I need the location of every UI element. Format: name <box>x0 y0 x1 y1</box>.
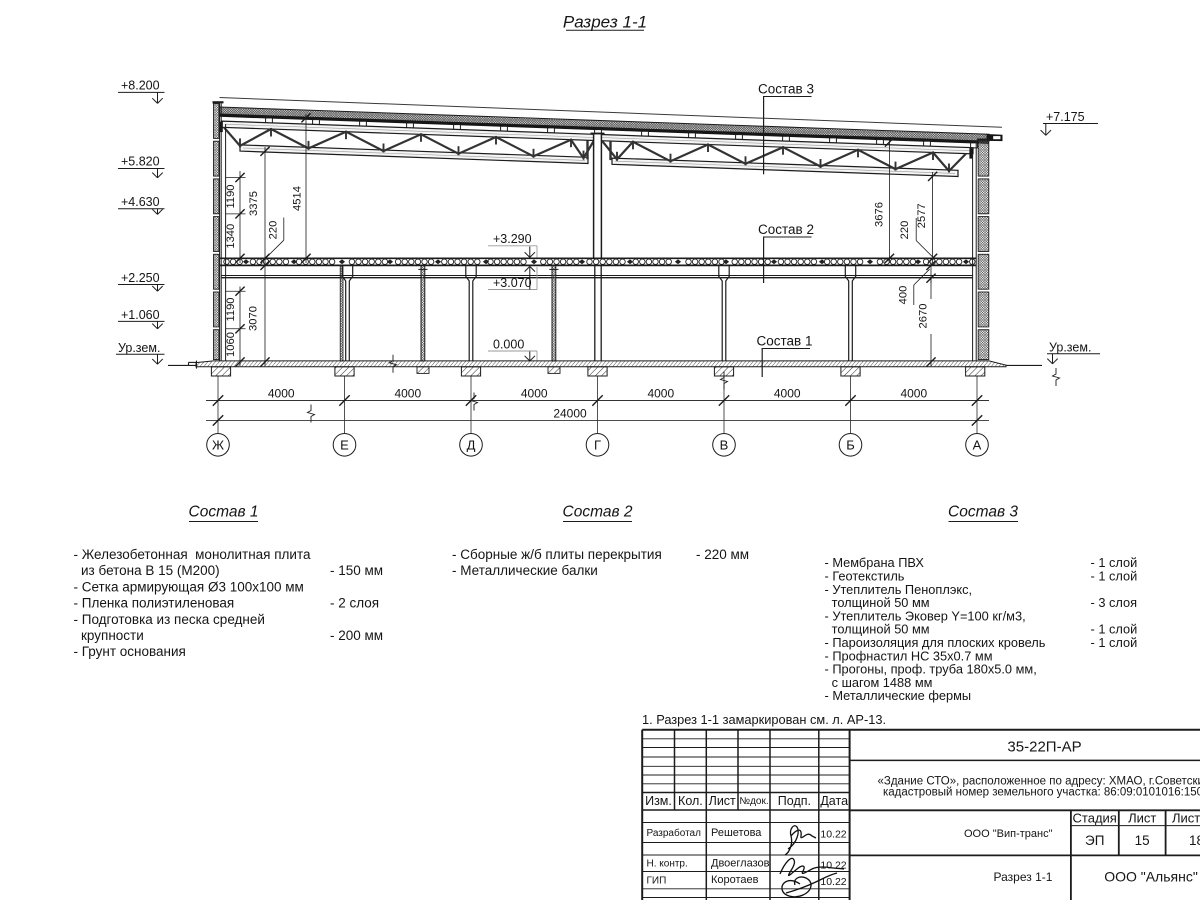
svg-text:- 220 мм: - 220 мм <box>696 547 749 562</box>
svg-text:ООО "Альянс": ООО "Альянс" <box>1104 869 1198 885</box>
svg-text:Коротаев: Коротаев <box>711 874 759 886</box>
svg-text:4000: 4000 <box>268 386 295 400</box>
svg-text:2577: 2577 <box>916 203 928 228</box>
svg-text:Состав 3: Состав 3 <box>948 504 1018 521</box>
svg-text:1. Разрез 1-1 замаркирован см.: 1. Разрез 1-1 замаркирован см. л. АР-13. <box>642 712 886 727</box>
svg-text:Состав 2: Состав 2 <box>758 222 814 237</box>
svg-text:4000: 4000 <box>521 386 548 400</box>
svg-text:4000: 4000 <box>900 386 927 400</box>
svg-text:- Сборные ж/б плиты перекрытия: - Сборные ж/б плиты перекрытия <box>452 547 662 562</box>
svg-text:Листов: Листов <box>1172 811 1200 826</box>
svg-text:Лист: Лист <box>1128 811 1156 826</box>
svg-text:Н. контр.: Н. контр. <box>647 859 688 870</box>
svg-text:3375: 3375 <box>248 191 260 216</box>
svg-text:4514: 4514 <box>292 186 304 211</box>
svg-text:- 200 мм: - 200 мм <box>330 628 383 643</box>
svg-text:В: В <box>720 437 729 452</box>
svg-text:- Металлические балки: - Металлические балки <box>452 563 598 578</box>
svg-text:Д: Д <box>467 437 476 452</box>
svg-text:- 3 слоя: - 3 слоя <box>1091 595 1138 610</box>
svg-text:- 150 мм: - 150 мм <box>330 563 383 578</box>
svg-text:- 1 слой: - 1 слой <box>1091 569 1138 584</box>
svg-text:«Здание СТО», расположенное по: «Здание СТО», расположенное по адресу: Х… <box>878 775 1200 787</box>
svg-text:- Пленка полиэтиленовая: - Пленка полиэтиленовая <box>74 596 235 611</box>
svg-text:Разрез 1-1: Разрез 1-1 <box>563 12 647 31</box>
svg-text:Дата: Дата <box>820 794 848 808</box>
svg-text:0.000: 0.000 <box>493 338 524 352</box>
svg-text:Ур.зем.: Ур.зем. <box>1049 341 1091 355</box>
svg-text:+3.070: +3.070 <box>493 276 532 290</box>
svg-text:3676: 3676 <box>873 202 885 227</box>
svg-text:№док.: №док. <box>739 796 768 807</box>
svg-text:Двоеглазов: Двоеглазов <box>711 858 770 870</box>
svg-text:220: 220 <box>899 221 911 240</box>
svg-text:крупности: крупности <box>74 628 144 643</box>
svg-text:+8.200: +8.200 <box>121 79 160 93</box>
svg-text:- 1 слой: - 1 слой <box>1091 635 1138 650</box>
svg-text:Ж: Ж <box>212 437 224 452</box>
svg-text:1190: 1190 <box>225 297 237 321</box>
svg-text:2670: 2670 <box>917 304 929 329</box>
svg-text:1190: 1190 <box>225 184 237 208</box>
svg-text:+3.290: +3.290 <box>493 232 532 246</box>
svg-text:4000: 4000 <box>394 386 421 400</box>
svg-text:Состав 1: Состав 1 <box>189 504 259 521</box>
svg-text:- Сетка армирующая Ø3 100х100: - Сетка армирующая Ø3 100х100 мм <box>74 579 304 594</box>
svg-text:из бетона В 15 (М200): из бетона В 15 (М200) <box>74 563 220 578</box>
svg-text:+2.250: +2.250 <box>121 271 160 285</box>
svg-text:кадастровый номер земельного у: кадастровый номер земельного участка: 86… <box>883 787 1200 799</box>
svg-text:А: А <box>973 437 982 452</box>
svg-text:- Грунт основания: - Грунт основания <box>74 644 186 659</box>
svg-text:Состав 2: Состав 2 <box>563 504 633 521</box>
svg-text:Решетова: Решетова <box>711 827 762 839</box>
svg-text:4000: 4000 <box>647 386 674 400</box>
svg-text:35-22П-АР: 35-22П-АР <box>1007 739 1081 756</box>
svg-text:- Железобетонная монолитная п: - Железобетонная монолитная плита <box>74 547 311 562</box>
svg-text:+4.630: +4.630 <box>121 195 160 209</box>
svg-text:400: 400 <box>898 286 910 305</box>
svg-text:Состав 1: Состав 1 <box>757 334 813 349</box>
svg-text:Кол.: Кол. <box>678 794 703 808</box>
svg-text:+5.820: +5.820 <box>121 155 160 169</box>
svg-text:- Подготовка из песка средней: - Подготовка из песка средней <box>74 612 265 627</box>
svg-text:18: 18 <box>1189 833 1200 848</box>
svg-text:Лист: Лист <box>709 794 736 808</box>
svg-text:Разработал: Разработал <box>647 827 702 839</box>
svg-text:Б: Б <box>846 437 855 452</box>
svg-text:ООО "Вип-транс": ООО "Вип-транс" <box>964 828 1053 840</box>
svg-text:Г: Г <box>594 437 601 452</box>
svg-text:1340: 1340 <box>225 224 237 249</box>
svg-text:+7.175: +7.175 <box>1046 110 1085 124</box>
svg-text:15: 15 <box>1135 833 1150 848</box>
svg-text:10.22: 10.22 <box>820 829 846 841</box>
svg-text:24000: 24000 <box>553 406 587 420</box>
svg-text:Е: Е <box>340 437 349 452</box>
svg-text:Состав 3: Состав 3 <box>758 82 814 97</box>
svg-text:- Металлические фермы: - Металлические фермы <box>825 688 972 703</box>
svg-text:1060: 1060 <box>225 332 237 357</box>
svg-text:ЭП: ЭП <box>1085 833 1104 848</box>
svg-text:Подп.: Подп. <box>778 794 811 808</box>
svg-text:ГИП: ГИП <box>647 876 667 887</box>
svg-text:3070: 3070 <box>248 306 260 331</box>
svg-text:220: 220 <box>268 221 280 240</box>
svg-text:+1.060: +1.060 <box>121 308 160 322</box>
svg-text:Изм.: Изм. <box>645 794 672 808</box>
svg-text:Стадия: Стадия <box>1073 811 1117 826</box>
svg-text:Разрез 1-1: Разрез 1-1 <box>994 870 1053 884</box>
svg-text:Ур.зем.: Ур.зем. <box>118 341 160 355</box>
svg-text:- 2 слоя: - 2 слоя <box>330 596 379 611</box>
svg-text:4000: 4000 <box>774 386 801 400</box>
